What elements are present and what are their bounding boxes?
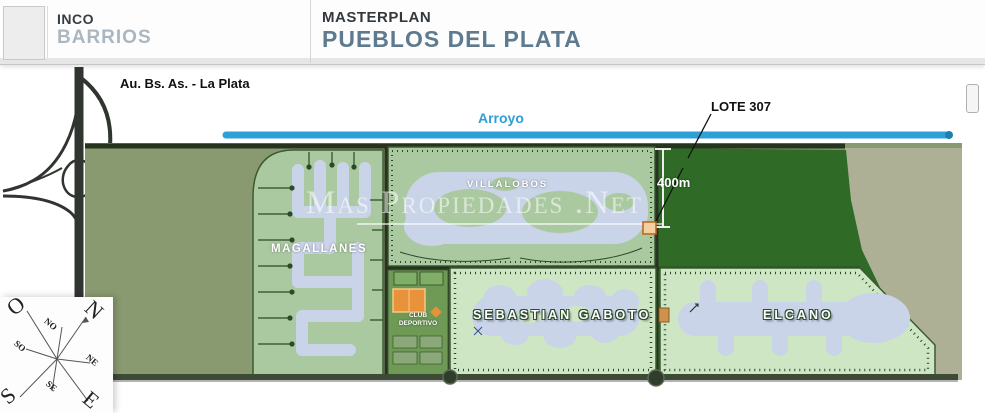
club-deportivo-label: CLUB DEPORTIVO xyxy=(388,312,448,328)
lot-307-marker xyxy=(643,222,656,234)
neighborhood-label-villalobos: VILLALOBOS xyxy=(467,179,548,190)
neighborhood-label-gaboto: SEBASTIAN GABOTO xyxy=(473,308,651,322)
header-divider-2 xyxy=(310,0,311,63)
header-bottom-strip xyxy=(0,58,985,64)
distance-label: 400m xyxy=(657,175,690,190)
page-title-kicker: MASTERPLAN xyxy=(322,9,431,26)
neighborhood-label-magallanes: MAGALLANES xyxy=(271,243,367,255)
magallanes-area xyxy=(253,150,383,375)
brand-name: INCO xyxy=(57,11,94,27)
compass-rose: O N S E NO SO NE SE xyxy=(0,297,113,413)
neighborhood-label-elcano: ELCANO xyxy=(763,308,834,322)
scrollbar-thumb[interactable] xyxy=(966,84,979,113)
masterplan-viewer: INCO BARRIOS MASTERPLAN PUEBLOS DEL PLAT… xyxy=(0,0,985,413)
club-label-line1: CLUB xyxy=(409,312,427,319)
highway-label: Au. Bs. As. - La Plata xyxy=(120,76,250,91)
arroyo-line xyxy=(226,131,953,139)
arroyo-label: Arroyo xyxy=(478,110,524,126)
lot-307-label: LOTE 307 xyxy=(711,99,771,114)
header-bar: INCO BARRIOS MASTERPLAN PUEBLOS DEL PLAT… xyxy=(0,0,985,65)
brand-subname: BARRIOS xyxy=(57,27,152,49)
watermark: Mas Propiedades .Net xyxy=(306,185,643,222)
header-divider xyxy=(47,6,48,58)
logo-placeholder xyxy=(3,6,45,60)
club-label-line2: DEPORTIVO xyxy=(399,320,437,327)
page-title: PUEBLOS DEL PLATA xyxy=(322,26,582,53)
